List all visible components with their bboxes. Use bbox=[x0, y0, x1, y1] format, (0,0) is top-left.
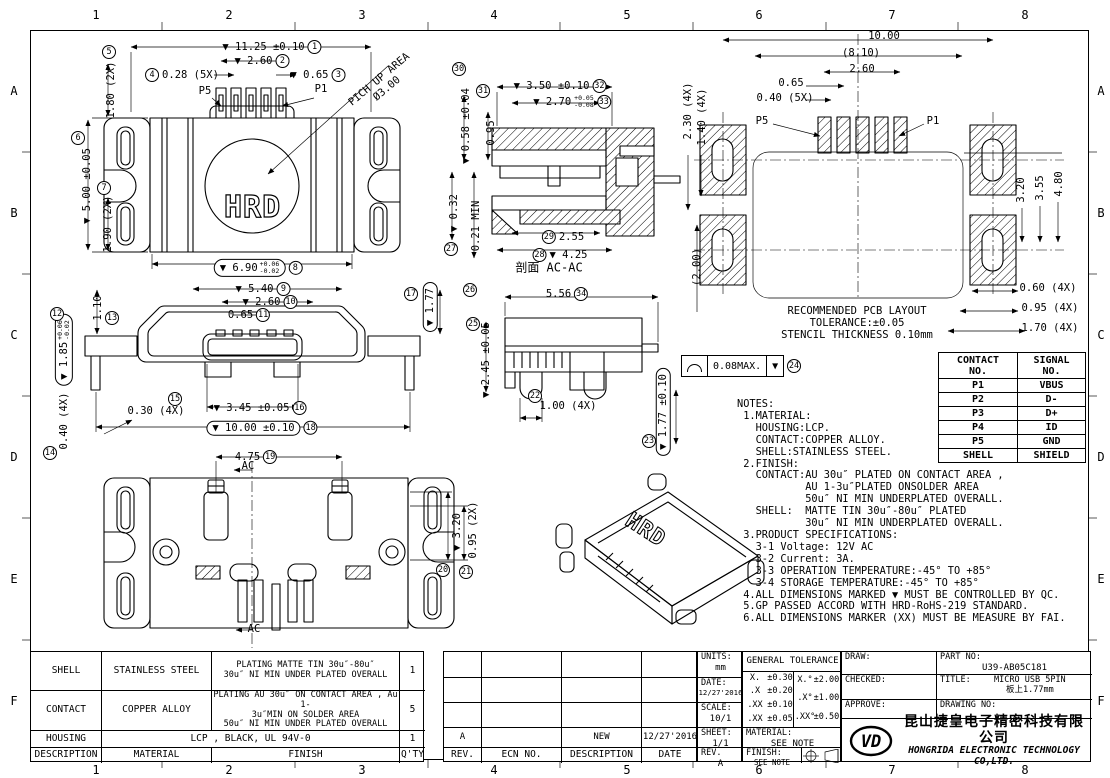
dim-label: 0.95 (4X) bbox=[1022, 303, 1079, 314]
dim-balloon: 12 bbox=[50, 307, 64, 321]
dim-label: 292.55 bbox=[542, 230, 584, 244]
dim-label: 1.90 (2X) bbox=[103, 196, 114, 253]
dim-label: ▼ 0.58 ±0.04 bbox=[461, 88, 472, 164]
note-line: CONTACT:COPPER ALLOY. bbox=[737, 435, 1066, 447]
dim-label: 1.00 (4X) bbox=[540, 401, 597, 412]
svg-text:VD: VD bbox=[861, 732, 881, 752]
pcb-layout-note: RECOMMENDED PCB LAYOUT bbox=[787, 305, 926, 317]
notes-block: NOTES: 1.MATERIAL: HOUSING:LCP. CONTACT:… bbox=[737, 399, 1066, 625]
info-column: UNITS:mm DATE:12/27'2016 SCALE:10/1 SHEE… bbox=[697, 651, 742, 762]
dim-label: 0.95 (2X) bbox=[468, 502, 479, 559]
dim-balloon: 21 bbox=[459, 565, 473, 579]
dim-label: ▼ 1.77 bbox=[423, 282, 438, 332]
note-line: SHELL:STAINLESS STEEL. bbox=[737, 447, 1066, 459]
flatness-symbol-icon bbox=[682, 356, 707, 376]
dim-label: 1.80 (2X) bbox=[106, 62, 117, 119]
units-value: mm bbox=[715, 663, 726, 673]
dim-label: 1.40 (4X) bbox=[697, 89, 708, 146]
dim-balloon: 25 bbox=[466, 317, 480, 331]
dim-label: 0.65 bbox=[778, 78, 803, 89]
dim-label: ▼ 3.45 ±0.0516 bbox=[214, 401, 307, 415]
dim-label: 2.60 bbox=[849, 64, 874, 75]
qc-triangle-icon: ▼ bbox=[766, 356, 783, 376]
flatness-callout: 0.08MAX. ▼ bbox=[681, 355, 784, 377]
dim-label: ▼ 0.653 bbox=[291, 68, 346, 82]
dim-balloon: 15 bbox=[168, 392, 182, 406]
revision-rev: A bbox=[444, 727, 481, 747]
dim-label: 3.20 bbox=[1016, 177, 1027, 202]
dim-label: 0.6511 bbox=[228, 308, 270, 322]
tolerance-title: GENERAL TOLERANCE bbox=[743, 652, 842, 671]
dim-label: 3.55 bbox=[1035, 175, 1046, 200]
draw-label: DRAW: bbox=[842, 652, 936, 674]
material-row-description: HOUSING bbox=[31, 730, 101, 747]
dim-label: ▼ 2.45 ±0.05 bbox=[481, 322, 492, 398]
material-table: SHELL STAINLESS STEEL PLATING MATTE TIN … bbox=[30, 651, 424, 762]
dim-label: ▼ 11.25 ±0.101 bbox=[222, 40, 321, 54]
part-title-line2: 板上1.77mm bbox=[1006, 686, 1054, 696]
projection-angle-icon bbox=[803, 749, 841, 763]
dim-label: ▼ 0.32 bbox=[449, 194, 460, 232]
dim-label: ▼ 2.6010 bbox=[243, 295, 298, 309]
dim-label: 0.21 MIN bbox=[471, 201, 482, 252]
drawing-sheet: 1 2 3 4 5 6 7 8 1 2 3 4 5 6 7 8 A B C D … bbox=[0, 0, 1110, 778]
dim-label: 2.30 (4X) bbox=[683, 83, 694, 140]
dim-label: ▼ 5.00 ±0.05 bbox=[82, 148, 93, 224]
bottom-view-linework bbox=[104, 457, 468, 648]
dim-label: 1.70 (4X) bbox=[1022, 323, 1079, 334]
section-arrow-label: AC bbox=[242, 461, 255, 472]
dim-label: 0.40 (4X) bbox=[59, 393, 70, 450]
dim-label: ▼ 3.50 ±0.1032 bbox=[514, 79, 607, 93]
dim-label: 0.30 (4X) bbox=[128, 406, 185, 417]
company-name-cn: 昆山捷皇电子精密科技有限公司 bbox=[902, 714, 1086, 746]
hrd-logo-text: HRD bbox=[224, 190, 281, 225]
signal-col-header: SIGNAL NO. bbox=[1018, 353, 1086, 379]
isometric-view-linework: HRD bbox=[556, 474, 764, 624]
dim-label: ▼ 2.602 bbox=[235, 54, 290, 68]
note-line: 3-3 OPERATION TEMPERATURE:-45° TO +85° bbox=[737, 566, 1066, 578]
dim-label: 0.60 (4X) bbox=[1020, 283, 1077, 294]
pin-label-p5: P5 bbox=[756, 116, 769, 127]
tolerance-block: GENERAL TOLERANCE X. ±0.30 .X ±0.20 .XX … bbox=[742, 651, 841, 762]
dim-balloon: 20 bbox=[436, 563, 450, 577]
dim-label: 4.80 bbox=[1054, 171, 1065, 196]
dim-label: 5.5634 bbox=[546, 287, 588, 301]
note-line: 6.ALL DIMENSIONS MARKER (XX) MUST BE MEA… bbox=[737, 613, 1066, 625]
dim-label: ▼ 6.90+0.06-0.02 8 bbox=[214, 259, 303, 277]
revision-ecn bbox=[481, 727, 561, 747]
dim-balloon: 13 bbox=[105, 311, 119, 325]
pcb-layout-note: TOLERANCE:±0.05 bbox=[810, 317, 905, 329]
company-name-en: HONGRIDA ELECTRONIC TECHNOLOGY CO,LTD. bbox=[902, 746, 1086, 768]
revision-description: NEW bbox=[561, 727, 641, 747]
finish-value: SEE NOTE bbox=[754, 759, 790, 768]
note-line: 3-1 Voltage: 12V AC bbox=[737, 542, 1066, 554]
dim-label: ▼ 2.70+0.05-0.0833 bbox=[533, 95, 611, 109]
dim-label: ▼ 1.85+0.06-0.02 bbox=[55, 314, 73, 386]
material-header: DESCRIPTION bbox=[31, 747, 101, 763]
flatness-value: 0.08MAX. bbox=[707, 356, 766, 376]
pcb-layout-note: STENCIL THICKNESS 0.10mm bbox=[781, 329, 933, 341]
projection-symbols bbox=[801, 747, 842, 763]
dim-balloon: 14 bbox=[43, 446, 57, 460]
dim-balloon: 17 bbox=[404, 287, 418, 301]
dim-label: (2.00) bbox=[692, 248, 703, 286]
dim-label: 1.10 bbox=[93, 295, 104, 320]
side-view-linework bbox=[486, 297, 676, 444]
dim-balloon: 31 bbox=[476, 84, 490, 98]
dim-balloon: 5 bbox=[102, 45, 116, 59]
date-value: 12/27'2016 bbox=[699, 689, 743, 697]
table-row: P1VBUS bbox=[939, 379, 1086, 393]
revision-table: A NEW 12/27'2016 REV. ECN NO. DESCRIPTIO… bbox=[443, 651, 697, 762]
scale-value: 10/1 bbox=[710, 714, 732, 724]
revision-date: 12/27'2016 bbox=[641, 727, 698, 747]
top-view-linework: HRD bbox=[88, 47, 400, 269]
dim-label: ▼ 5.409 bbox=[236, 282, 291, 296]
dim-balloon: 24 bbox=[787, 359, 801, 373]
contact-col-header: CONTACT NO. bbox=[939, 353, 1018, 379]
part-number: U39-AB05C181 bbox=[982, 663, 1047, 673]
company-strip: VD 昆山捷皇电子精密科技有限公司 HONGRIDA ELECTRONIC TE… bbox=[842, 718, 1092, 763]
section-view-title: 剖面 AC-AC bbox=[515, 259, 582, 276]
title-cell: TITLE: MICRO USB 5PIN 板上1.77mm bbox=[936, 674, 1092, 699]
dim-label: (8.10) bbox=[842, 48, 880, 59]
dim-balloon: 22 bbox=[528, 389, 542, 403]
pcb-layout-linework bbox=[688, 34, 1064, 331]
checked-label: CHECKED: bbox=[842, 674, 936, 699]
dim-label: ▼ 3.20 bbox=[452, 513, 463, 551]
dim-label: 0.95 bbox=[486, 120, 497, 145]
dim-balloon: 7 bbox=[97, 181, 111, 195]
dim-label: 0.40 (5X) bbox=[757, 93, 814, 104]
dim-balloon: 23 bbox=[642, 434, 656, 448]
dim-label: 10.00 bbox=[868, 31, 900, 42]
title-block: DRAW: CHECKED: APPROVE: PART NO:U39-AB05… bbox=[841, 651, 1091, 762]
material-row-description: SHELL bbox=[31, 652, 101, 690]
dim-balloon: 6 bbox=[71, 131, 85, 145]
material-row-description: CONTACT bbox=[31, 690, 101, 730]
dim-balloon: 27 bbox=[444, 242, 458, 256]
note-line: HOUSING:LCP. bbox=[737, 423, 1066, 435]
pin-label-p1: P1 bbox=[315, 84, 328, 95]
note-line: 3-2 Current: 3A. bbox=[737, 554, 1066, 566]
dim-label: 40.28 (5X) bbox=[145, 68, 219, 82]
dim-balloon: 30 bbox=[452, 62, 466, 76]
dim-label: ▼ 1.77 ±0.10 bbox=[656, 368, 671, 456]
company-logo-icon: VD bbox=[848, 724, 894, 758]
section-arrow-label: AC bbox=[248, 624, 261, 635]
note-line: 3-4 STORAGE TEMPERATURE:-45° TO +85° bbox=[737, 578, 1066, 590]
dim-label: ▼ 10.00 ±0.1018 bbox=[206, 421, 317, 436]
rev-value: A bbox=[718, 759, 723, 769]
pin-label-p5: P5 bbox=[199, 86, 212, 97]
dim-balloon: 26 bbox=[463, 283, 477, 297]
pin-label-p1: P1 bbox=[927, 116, 940, 127]
